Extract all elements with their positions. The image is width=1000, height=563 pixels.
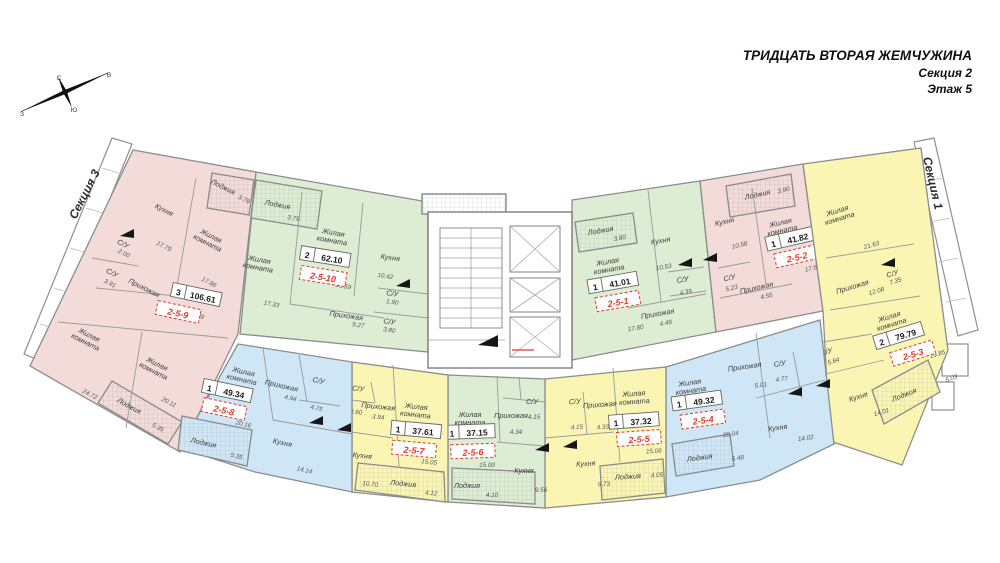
room-label: Кухня bbox=[576, 458, 596, 468]
apartment-id: 2-5-6 bbox=[461, 447, 484, 458]
compass: С Ю В З bbox=[14, 57, 116, 127]
plan-floor: Этаж 5 bbox=[927, 82, 972, 96]
compass-point-south bbox=[63, 91, 74, 108]
room-area: 9.73 bbox=[598, 481, 611, 489]
room-label: Лоджия bbox=[453, 481, 480, 490]
room-area: 15.00 bbox=[479, 462, 495, 469]
total-area: 37.32 bbox=[630, 416, 652, 427]
plan-section: Секция 2 bbox=[918, 66, 972, 80]
room-label: С/У bbox=[526, 397, 539, 406]
apartment-2-5-6: Жилаякомната 15.00 Прихожая 4.34 С/У 4.1… bbox=[445, 375, 548, 508]
room-area: 4.15 bbox=[571, 424, 584, 432]
apartment-id: 2-5-5 bbox=[627, 434, 651, 446]
room-label: Лоджия bbox=[614, 471, 642, 482]
room-area: 4.12 bbox=[425, 489, 438, 497]
room-area: 4.10 bbox=[486, 492, 499, 499]
apartment-2-5-1: Лоджия 3.80 Жилаякомната 17.80 Кухня 10.… bbox=[572, 181, 716, 360]
rooms-count: 1 bbox=[449, 429, 454, 439]
rooms-count: 1 bbox=[613, 418, 619, 428]
room-area: 4.05 bbox=[651, 472, 664, 480]
apartment-id: 2-5-7 bbox=[402, 445, 426, 457]
room-area: 9.56 bbox=[535, 487, 548, 494]
apartment-2-5-5: С/У 4.15 Прихожая 4.33 Жилаякомната 15.0… bbox=[545, 367, 666, 508]
floor-plan-canvas: Секция 3 Секция 1 Кухня 17.79 Лоджия 3.7… bbox=[0, 0, 1000, 563]
plan-title-block: ТРИДЦАТЬ ВТОРАЯ ЖЕМЧУЖИНА Секция 2 Этаж … bbox=[743, 48, 972, 96]
room-label: С/У bbox=[569, 397, 583, 407]
apartment-id-badge: 2-5-6 bbox=[451, 443, 495, 459]
room-label: Кухня bbox=[514, 466, 534, 475]
compass-west-label: З bbox=[20, 111, 24, 118]
plan-title: ТРИДЦАТЬ ВТОРАЯ ЖЕМЧУЖИНА bbox=[743, 48, 972, 63]
room-label: С/У bbox=[352, 383, 366, 393]
room-area: 4.15 bbox=[528, 414, 541, 421]
apartment-2-5-2: Лоджия 3.90 Кухня 10.58 Жилаякомната 17.… bbox=[700, 164, 823, 332]
apartment-2-5-10: Лоджия 3.79 Жилаякомната 17.33 Жилаякомн… bbox=[240, 172, 428, 352]
room-area: 4.34 bbox=[510, 429, 523, 436]
balcony-hatch-overlay bbox=[422, 194, 506, 214]
apartment-info-box: 1 37.15 bbox=[445, 424, 495, 440]
room-label: Прихожая bbox=[494, 411, 528, 420]
room-area: 4.33 bbox=[597, 424, 610, 432]
room-area: 15.06 bbox=[646, 447, 663, 455]
total-area: 37.15 bbox=[466, 427, 488, 438]
compass-south-label: Ю bbox=[71, 107, 78, 114]
compass-axis bbox=[21, 72, 109, 111]
compass-star bbox=[14, 57, 116, 127]
floor-plan-drawing: Секция 3 Секция 1 Кухня 17.79 Лоджия 3.7… bbox=[0, 0, 1000, 563]
apartment-2-5-7: С/У 3.60 Прихожая 3.94 Жилаякомната 15.0… bbox=[350, 362, 448, 502]
room-area: 3.94 bbox=[372, 413, 385, 421]
balcony-hatch bbox=[422, 194, 506, 214]
apartment-info-box: 1 37.32 bbox=[608, 412, 659, 429]
total-area: 37.61 bbox=[412, 426, 434, 438]
compass-east-label: В bbox=[107, 72, 111, 79]
compass-north-label: С bbox=[57, 75, 62, 82]
apartment-2-5-4: Жилаякомната 20.04 Прихожая 5.01 С/У 4.7… bbox=[666, 320, 834, 497]
room-label: Жилаякомната bbox=[400, 400, 432, 420]
